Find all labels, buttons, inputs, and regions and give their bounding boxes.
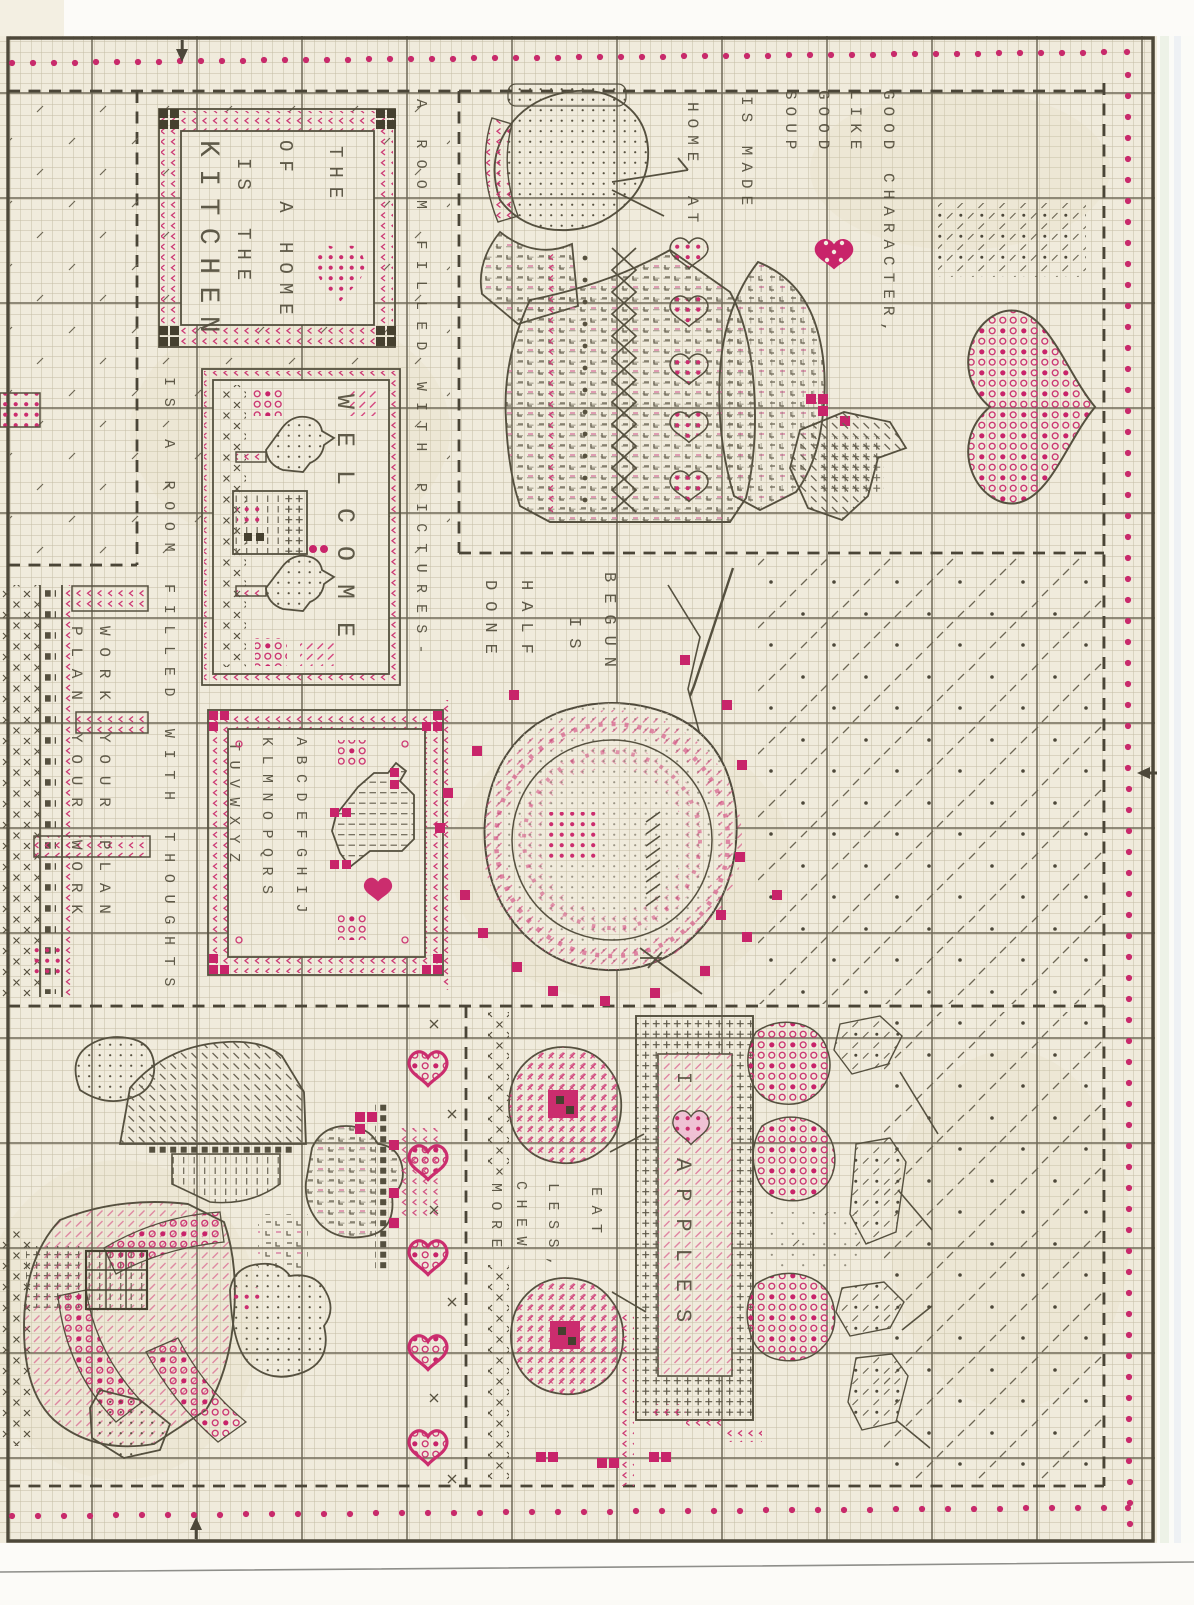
svg-text:DONE: DONE xyxy=(480,580,499,665)
svg-text:GOOD: GOOD xyxy=(814,90,832,156)
svg-text:A ROOM FILLED WITH PICTURES-: A ROOM FILLED WITH PICTURES- xyxy=(412,99,429,665)
svg-text:HOME: HOME xyxy=(683,102,701,168)
svg-text:HALF: HALF xyxy=(516,580,535,665)
svg-text:APPLES: APPLES xyxy=(670,1158,695,1339)
svg-text:KITCHEN: KITCHEN xyxy=(192,140,223,345)
svg-text:LIKE: LIKE xyxy=(846,90,864,156)
svg-text:IS MADE: IS MADE xyxy=(737,96,755,212)
svg-text:BEGUN: BEGUN xyxy=(599,572,618,678)
svg-text:IS: IS xyxy=(232,158,254,199)
svg-text:CHEW: CHEW xyxy=(512,1181,529,1255)
svg-text:WORK YOUR PLAN: WORK YOUR PLAN xyxy=(95,626,113,926)
svg-text:ABCDEFGHIJ: ABCDEFGHIJ xyxy=(292,737,309,922)
svg-text:WELCOME: WELCOME xyxy=(330,394,359,660)
svg-text:EAT: EAT xyxy=(587,1187,604,1243)
svg-text:THE: THE xyxy=(324,146,346,207)
svg-text:TUVWXYZ: TUVWXYZ xyxy=(225,742,242,872)
svg-text:OF A HOME: OF A HOME xyxy=(274,140,296,324)
svg-text:PLAN YOUR WORK: PLAN YOUR WORK xyxy=(67,626,85,926)
svg-text:MORE: MORE xyxy=(487,1183,504,1257)
svg-text:GOOD CHARACTER,: GOOD CHARACTER, xyxy=(879,90,897,339)
svg-text:LESS,: LESS, xyxy=(544,1183,561,1276)
svg-text:IS: IS xyxy=(564,617,583,659)
svg-text:AT: AT xyxy=(683,196,701,229)
svg-text:I: I xyxy=(671,1072,694,1094)
svg-text:SOUP: SOUP xyxy=(781,90,799,156)
svg-text:IS A ROOM FILLED WITH THOUGHTS: IS A ROOM FILLED WITH THOUGHTS xyxy=(160,377,177,998)
svg-text:THE: THE xyxy=(232,228,254,289)
svg-text:KLMNOPQRS: KLMNOPQRS xyxy=(258,737,275,904)
